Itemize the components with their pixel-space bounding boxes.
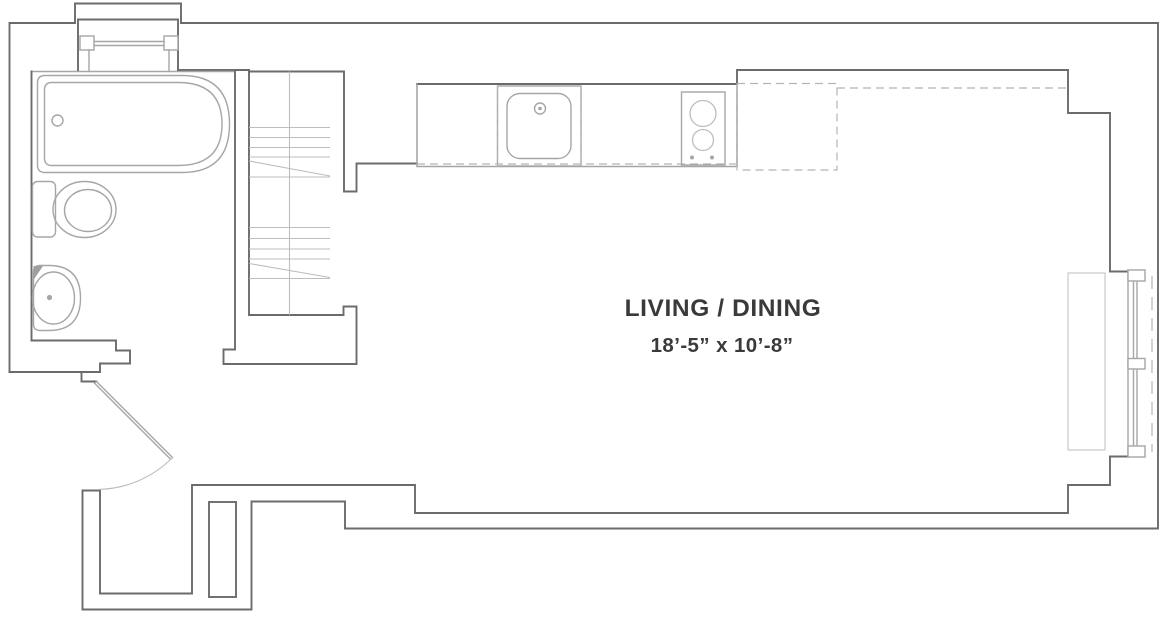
kitchen-sink-faucet-center xyxy=(538,107,542,111)
refrigerator xyxy=(737,84,1068,171)
wall-bathroom-bottom xyxy=(10,341,131,373)
east-window-bracket-top xyxy=(1128,270,1145,281)
bathroom-sink-basin xyxy=(33,272,75,324)
cooktop-burner-large xyxy=(690,101,716,127)
closet-shelves xyxy=(249,72,330,316)
interior-walls xyxy=(10,70,1111,597)
refrigerator-dashed-outline xyxy=(737,84,837,171)
floor-plan-drawing: LIVING / DINING 18’-5” x 10’-8” xyxy=(0,0,1170,620)
wall-outer-loop xyxy=(83,23,1159,610)
floor-plan: LIVING / DINING 18’-5” x 10’-8” xyxy=(0,0,1170,620)
entry-door xyxy=(95,382,173,490)
bathtub xyxy=(38,76,230,173)
bathroom-sink-corner-shelf xyxy=(34,266,44,280)
kitchen-sink xyxy=(498,86,582,167)
toilet xyxy=(33,182,117,238)
bay-window-inner-jambs xyxy=(89,50,169,72)
bay-window-jamb-right xyxy=(164,36,178,50)
room-label: LIVING / DINING xyxy=(625,295,822,322)
wall-closet-right xyxy=(249,72,417,192)
east-window xyxy=(1068,270,1152,457)
bathtub-outer xyxy=(38,76,230,173)
entry-door-jamb xyxy=(82,372,97,382)
room-labels: LIVING / DINING 18’-5” x 10’-8” xyxy=(625,295,822,357)
exterior-walls xyxy=(10,4,1159,610)
room-dimensions: 18’-5” x 10’-8” xyxy=(651,334,794,357)
bay-window-glass xyxy=(94,42,164,46)
bathroom-sink xyxy=(33,266,81,331)
bathtub-drain xyxy=(52,115,63,126)
bay-window-jamb-left xyxy=(80,36,94,50)
toilet-tank xyxy=(33,182,56,238)
cooktop-knob-right xyxy=(710,156,714,160)
east-window-bracket-middle xyxy=(1128,359,1145,370)
entry-door-leaf xyxy=(95,382,173,460)
bathtub-inner xyxy=(45,83,223,166)
cooktop-burner-small xyxy=(693,130,714,151)
cooktop-unit xyxy=(682,92,726,165)
toilet-bowl-inner xyxy=(65,190,112,232)
kitchen-counter xyxy=(417,84,737,167)
duct-pillar xyxy=(209,502,236,597)
east-window-bracket-bottom xyxy=(1128,446,1145,457)
kitchen-counter-outline xyxy=(417,84,737,167)
radiator xyxy=(1068,273,1105,450)
entry-door-swing-arc xyxy=(97,458,173,490)
bathroom-sink-faucet xyxy=(47,295,52,300)
bathroom-sink-outer xyxy=(34,266,81,331)
cooktop-knob-left xyxy=(690,156,694,160)
cooktop xyxy=(682,92,726,165)
bay-window xyxy=(78,20,178,72)
east-window-sills xyxy=(1110,272,1128,457)
